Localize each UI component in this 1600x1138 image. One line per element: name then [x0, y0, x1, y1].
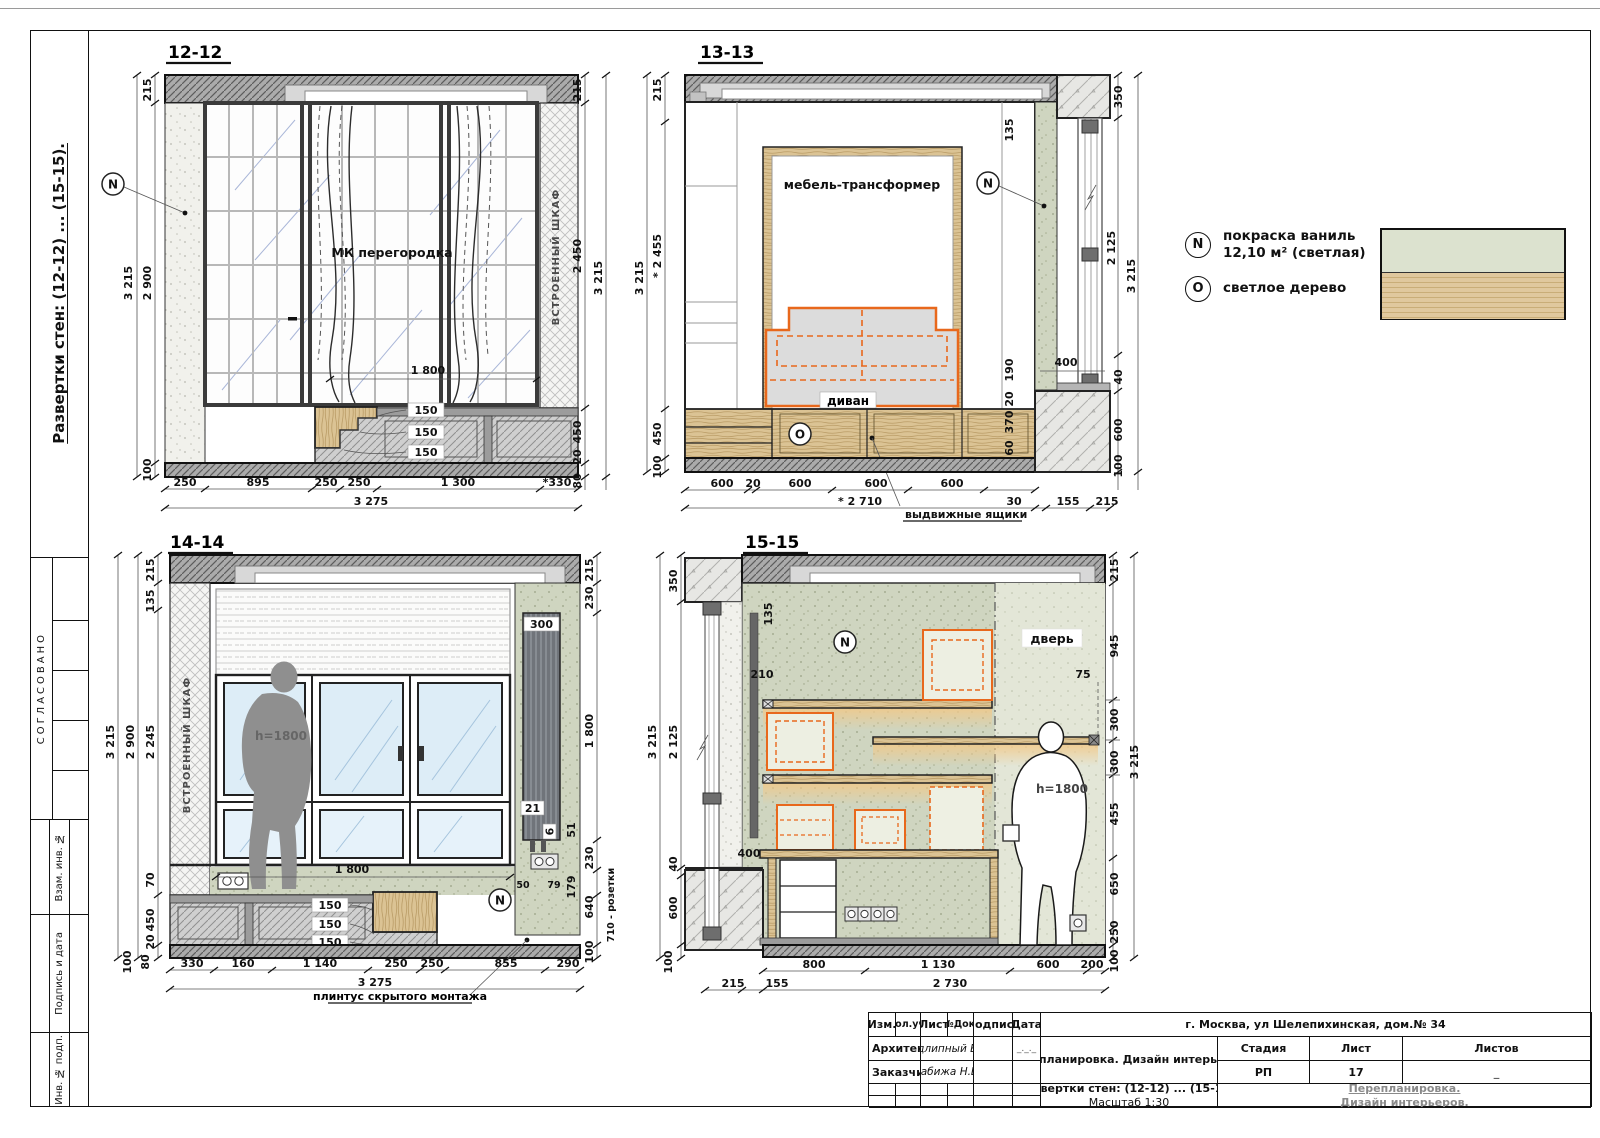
svg-text:215: 215: [144, 559, 157, 582]
svg-text:100: 100: [1112, 454, 1125, 477]
floor-band: [763, 945, 1105, 957]
stamp-cell: Взам. инв. №: [30, 820, 88, 915]
skirting-leader: плинтус скрытого монтажа: [313, 990, 487, 1003]
tb-empty: [1013, 1061, 1041, 1084]
tb-empty: [1013, 1084, 1041, 1096]
svg-text:400: 400: [1055, 356, 1078, 369]
svg-text:230: 230: [583, 846, 596, 869]
tb-stage-value: РП: [1218, 1061, 1310, 1084]
tb-client-label: Заказчик: [869, 1061, 921, 1084]
svg-text:2 450: 2 450: [571, 238, 584, 273]
svg-text:60: 60: [1003, 440, 1016, 456]
svg-text:3 275: 3 275: [358, 976, 392, 989]
svg-text:155: 155: [1057, 495, 1080, 508]
svg-text:135: 135: [144, 590, 157, 613]
svg-text:300: 300: [1108, 750, 1121, 773]
svg-text:50: 50: [516, 880, 530, 891]
svg-text:3 215: 3 215: [592, 261, 605, 295]
svg-text:800: 800: [803, 958, 826, 971]
svg-text:215: 215: [722, 977, 745, 990]
tb-doc-line2: Масштаб 1:30: [1089, 1096, 1169, 1109]
sockets-note: 710 - розетки: [606, 868, 617, 942]
svg-text:40: 40: [1112, 369, 1125, 385]
svg-text:100: 100: [662, 950, 675, 973]
wood-swatch: [1382, 273, 1564, 319]
svg-text:20: 20: [571, 449, 584, 465]
floor-band: [685, 458, 1035, 472]
svg-text:3 215: 3 215: [646, 725, 659, 759]
svg-text:230: 230: [583, 586, 596, 609]
svg-text:215: 215: [141, 79, 154, 102]
tb-date-cell: _._._: [1013, 1037, 1041, 1061]
approved-cell: СОГЛАСОВАНО: [30, 558, 88, 820]
stamp-cell-label: Взам. инв. №: [54, 833, 65, 902]
svg-text:600: 600: [789, 477, 812, 490]
svg-text:250: 250: [385, 957, 408, 970]
tb-header: Дата: [1013, 1013, 1041, 1037]
svg-text:215: 215: [1108, 559, 1121, 582]
legend-n-line1: покраска ваниль: [1223, 228, 1366, 245]
height-label: h=1800: [255, 729, 307, 743]
dim-label: 210: [751, 668, 774, 681]
svg-text:350: 350: [667, 569, 680, 592]
svg-text:N: N: [495, 894, 505, 908]
dim-label: 75: [1075, 668, 1090, 681]
door-handle-icon: [288, 317, 297, 321]
svg-text:895: 895: [247, 476, 270, 489]
tb-empty: [974, 1061, 1013, 1084]
svg-text:N: N: [840, 636, 850, 650]
platform: 150 150 150: [170, 892, 437, 949]
svg-text:250: 250: [348, 476, 371, 489]
finish-legend: N покраска ваниль 12,10 м² (светлая) O с…: [1185, 228, 1385, 316]
finish-marker-n: N: [834, 631, 856, 653]
svg-text:3 215: 3 215: [104, 725, 117, 759]
tb-sheet-header: Лист: [1310, 1037, 1403, 1061]
svg-text:350: 350: [1112, 85, 1125, 108]
svg-text:215: 215: [651, 79, 664, 102]
svg-text:215: 215: [571, 79, 584, 102]
svg-text:650: 650: [1108, 872, 1121, 895]
view-title: 12-12: [168, 43, 222, 63]
door-label: дверь: [1022, 629, 1082, 647]
tb-doc-title: Развертки стен: (12-12) ... (15-15). Мас…: [1041, 1084, 1218, 1108]
svg-text:370: 370: [1003, 410, 1016, 433]
approved-label: СОГЛАСОВАНО: [36, 632, 47, 744]
finish-marker-o: O: [795, 428, 805, 442]
svg-text:дверь: дверь: [1030, 631, 1073, 646]
svg-text:20: 20: [144, 934, 157, 950]
tb-sheets-value: _: [1403, 1061, 1591, 1084]
roman-blind: [216, 589, 510, 675]
tb-header: Кол.уч.: [896, 1013, 921, 1037]
dim-label: 1 800: [335, 863, 370, 876]
svg-text:179: 179: [565, 876, 578, 899]
radiator: 300 21 6: [521, 613, 560, 869]
step-dim: 150: [415, 446, 438, 459]
svg-text:135: 135: [1003, 119, 1016, 142]
svg-text:3 215: 3 215: [1128, 745, 1141, 779]
svg-text:100: 100: [141, 458, 154, 481]
wardrobe-label: ВСТРОЕННЫЙ ШКАФ: [549, 189, 562, 326]
stamp-cell: Подпись и дата: [30, 915, 88, 1033]
tb-header: Изм.: [869, 1013, 896, 1037]
right-wall: [1035, 75, 1110, 472]
svg-text:21: 21: [525, 802, 540, 815]
curtain-rail: [750, 613, 758, 838]
tb-architect-name: Подлипный В.В.: [921, 1037, 974, 1061]
svg-text:100: 100: [651, 455, 664, 478]
svg-text:450: 450: [144, 908, 157, 931]
svg-text:3 215: 3 215: [1125, 259, 1138, 293]
svg-text:250: 250: [174, 476, 197, 489]
tb-header: №Док.: [948, 1013, 974, 1037]
svg-text:330: 330: [181, 957, 204, 970]
svg-text:2 125: 2 125: [667, 725, 680, 759]
view-title: 14-14: [170, 533, 225, 553]
legend-marker-o: O: [1185, 276, 1211, 302]
dim-label: 135: [762, 603, 775, 626]
side-title: Развертки стен: (12-12) ... (15-15).: [50, 143, 68, 444]
tb-org-line2: Дизайн интерьеров.: [1340, 1096, 1468, 1109]
stamp-cell: Инв. № подп.: [30, 1033, 88, 1107]
glazed-partition: МК перегородка 1 800: [205, 103, 541, 405]
svg-text:1 300: 1 300: [441, 476, 476, 489]
svg-text:200: 200: [1081, 958, 1104, 971]
svg-text:600: 600: [941, 477, 964, 490]
svg-text:100: 100: [121, 950, 134, 973]
bed-label: мебель-трансформер: [784, 177, 940, 192]
tb-architect-label: Архитектор: [869, 1037, 921, 1061]
drawing-sheet: 12-12: [0, 0, 1600, 1138]
svg-text:1 800: 1 800: [583, 713, 596, 748]
svg-text:80: 80: [139, 954, 152, 970]
socket-group-icon: [845, 907, 897, 921]
platform: 150 150 150: [315, 403, 578, 463]
svg-text:70: 70: [144, 872, 157, 888]
tb-doc-line1: Развертки стен: (12-12) ... (15-15).: [1041, 1084, 1218, 1096]
svg-text:600: 600: [865, 477, 888, 490]
finish-marker-n: N: [489, 889, 511, 911]
tb-empty: [896, 1084, 921, 1096]
svg-text:*330: *330: [543, 476, 572, 489]
legend-n-line2: 12,10 м² (светлая): [1223, 245, 1366, 262]
tb-signature-cell: [974, 1037, 1013, 1061]
height-label: h=1800: [1036, 782, 1088, 796]
svg-text:290: 290: [557, 957, 580, 970]
svg-text:215: 215: [583, 559, 596, 582]
stamp-cell-label: Инв. № подп.: [54, 1035, 65, 1105]
tb-client-name: Дабижа Н.В.: [921, 1061, 974, 1084]
svg-text:51: 51: [565, 822, 578, 837]
wardrobe-label: ВСТРОЕННЫЙ ШКАФ: [180, 677, 193, 814]
svg-text:100: 100: [1108, 949, 1121, 972]
tb-address: г. Москва, ул Шелепихинская, дом.№ 34: [1041, 1013, 1591, 1037]
svg-text:190: 190: [1003, 358, 1016, 381]
svg-text:20: 20: [745, 477, 761, 490]
painted-wall-strip: [165, 103, 205, 463]
elevation-12-12: 12-12: [95, 35, 630, 525]
tb-empty: [869, 1084, 896, 1096]
tb-org: Перепланировка. Дизайн интерьеров.: [1218, 1084, 1591, 1108]
svg-text:300: 300: [530, 618, 553, 631]
svg-text:855: 855: [495, 957, 518, 970]
tb-empty: [921, 1096, 948, 1108]
svg-text:1 130: 1 130: [921, 958, 956, 971]
svg-text:150: 150: [319, 918, 342, 931]
svg-text:160: 160: [232, 957, 255, 970]
tb-sheets-header: Листов: [1403, 1037, 1591, 1061]
tb-empty: [921, 1084, 948, 1096]
view-title: 15-15: [745, 533, 799, 553]
tb-header: Лист: [921, 1013, 948, 1037]
svg-text:600: 600: [711, 477, 734, 490]
svg-text:250: 250: [315, 476, 338, 489]
tb-empty: [948, 1084, 974, 1096]
svg-text:600: 600: [667, 896, 680, 919]
tb-empty: [948, 1096, 974, 1108]
window-reveal: [719, 602, 742, 867]
stamp-cell-label: Подпись и дата: [54, 932, 65, 1015]
dim-label: 400: [738, 847, 761, 860]
window: [170, 589, 515, 865]
tb-stage-header: Стадия: [1218, 1037, 1310, 1061]
svg-text:600: 600: [1112, 418, 1125, 441]
switch-icon: [1003, 825, 1019, 841]
elevation-15-15: 15-15: [620, 520, 1165, 1025]
sofa: диван: [766, 308, 958, 408]
tb-org-line1: Перепланировка.: [1349, 1084, 1461, 1096]
drawer-stack: [780, 860, 836, 938]
svg-text:215: 215: [1096, 495, 1119, 508]
svg-text:455: 455: [1108, 803, 1121, 826]
svg-text:150: 150: [319, 899, 342, 912]
svg-text:2 900: 2 900: [141, 265, 154, 300]
svg-text:* 2 710: * 2 710: [838, 495, 882, 508]
tb-header: Подпись: [974, 1013, 1013, 1037]
paint-swatch: [1382, 230, 1564, 273]
tb-project: Перепланировка. Дизайн интерьеров.: [1041, 1037, 1218, 1084]
svg-text:450: 450: [571, 420, 584, 443]
elevation-14-14: 14-14 ВСТРОЕННЫЙ ШКАФ: [95, 520, 635, 1025]
svg-text:155: 155: [766, 977, 789, 990]
svg-text:3 215: 3 215: [633, 261, 646, 295]
svg-text:300: 300: [1108, 708, 1121, 731]
svg-text:30: 30: [1006, 495, 1022, 508]
svg-text:2 730: 2 730: [933, 977, 968, 990]
step-dim: 150: [415, 426, 438, 439]
concrete-wall-top: [685, 558, 742, 602]
svg-text:450: 450: [651, 422, 664, 445]
side-title-cell: Развертки стен: (12-12) ... (15-15).: [30, 30, 88, 558]
tb-empty: [974, 1096, 1013, 1108]
step-dim: 150: [415, 404, 438, 417]
svg-text:250: 250: [1108, 920, 1121, 943]
concrete-wall-bottom: [685, 870, 763, 950]
svg-text:N: N: [108, 178, 118, 192]
svg-text:40: 40: [667, 856, 680, 872]
svg-text:2 125: 2 125: [1105, 231, 1118, 265]
svg-text:250: 250: [421, 957, 444, 970]
tb-empty: [974, 1084, 1013, 1096]
dim-label: 1 800: [411, 364, 446, 377]
svg-text:* 2 455: * 2 455: [651, 234, 664, 278]
tb-empty: [869, 1096, 896, 1108]
floor-band: [165, 463, 578, 477]
view-title: 13-13: [700, 43, 754, 63]
svg-text:640: 640: [583, 895, 596, 918]
svg-text:100: 100: [583, 940, 596, 963]
svg-text:945: 945: [1108, 635, 1121, 658]
elevation-13-13: 13-13 мебель-трансформер д: [620, 35, 1150, 530]
sheet-top-edge: [0, 8, 1600, 9]
tb-empty: [896, 1096, 921, 1108]
svg-text:80: 80: [571, 473, 584, 489]
svg-text:1 140: 1 140: [303, 957, 338, 970]
svg-text:3 275: 3 275: [354, 495, 388, 508]
svg-text:20: 20: [1003, 391, 1016, 407]
partition-label: МК перегородка: [331, 245, 452, 260]
title-block: Изм. Кол.уч. Лист №Док. Подпись Дата г. …: [868, 1012, 1592, 1107]
tb-sheet-value: 17: [1310, 1061, 1403, 1084]
svg-text:2 900: 2 900: [124, 724, 137, 759]
tb-empty: [1013, 1096, 1041, 1108]
svg-text:79: 79: [547, 880, 560, 891]
svg-text:6: 6: [544, 827, 557, 835]
svg-text:600: 600: [1037, 958, 1060, 971]
material-swatch: [1380, 228, 1566, 320]
svg-text:3 215: 3 215: [122, 266, 135, 300]
legend-o-text: светлое дерево: [1223, 280, 1346, 297]
legend-marker-n: N: [1185, 232, 1211, 258]
svg-text:плинтус скрытого монтажа: плинтус скрытого монтажа: [313, 990, 487, 1003]
svg-text:N: N: [983, 177, 993, 191]
side-stamp-strip: Развертки стен: (12-12) ... (15-15). СОГ…: [30, 30, 89, 1107]
sofa-label: диван: [827, 394, 869, 408]
svg-text:2 245: 2 245: [144, 725, 157, 759]
